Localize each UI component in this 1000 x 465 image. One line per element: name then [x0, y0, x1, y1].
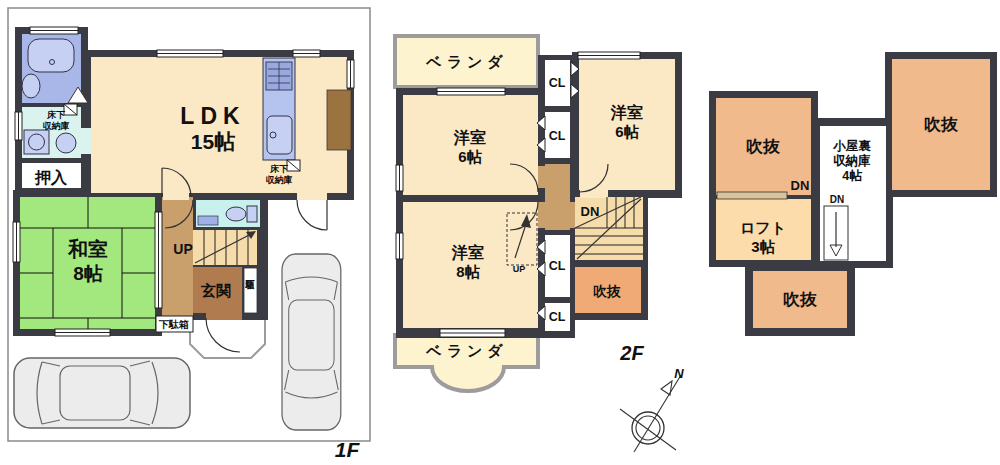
ldk-label-line2: 15帖 — [191, 130, 235, 153]
loft-label2: 3帖 — [751, 238, 775, 255]
hall-2f — [545, 164, 570, 230]
compass-north-label: N — [674, 366, 684, 381]
underfloor-label-b2: 収納庫 — [266, 174, 293, 185]
cabinet-counter — [327, 90, 351, 150]
attic-ladder-down — [824, 206, 848, 260]
bedroom6-left-label1: 洋室 — [453, 128, 486, 146]
car-icon-left — [14, 358, 190, 428]
veranda-top-label: ベランダ — [425, 53, 507, 70]
shoe-cabinet-right — [244, 268, 257, 313]
opening-stairs — [570, 202, 575, 228]
ldk-label-line1: LDK — [180, 103, 245, 129]
void-left-label: 吹抜 — [746, 137, 781, 156]
attic-label3: 4帖 — [842, 169, 862, 183]
underfloor-label-a2: 収納庫 — [43, 120, 70, 131]
underfloor-marker-a — [64, 104, 77, 115]
stairs-up-label-1f: UP — [173, 241, 192, 257]
underfloor-label-a1: 床下 — [46, 110, 66, 120]
compass-icon: N — [620, 366, 684, 452]
attic-label1: 小屋裏 — [832, 139, 871, 153]
attic-dn-label: DN — [830, 194, 844, 205]
opening-washroom — [81, 128, 91, 154]
opening-entrance — [206, 313, 242, 320]
opening-ldk-garden — [297, 193, 327, 200]
floor2-label: 2F — [619, 342, 644, 364]
veranda-bottom-label: ベランダ — [425, 342, 507, 359]
loft-ladder-bar — [717, 192, 787, 199]
void-2f-label: 吹抜 — [593, 283, 621, 299]
underfloor-label-b1: 床下 — [269, 164, 289, 174]
closet-2-label: CL — [549, 129, 566, 143]
genkan-label: 玄関 — [200, 282, 231, 299]
bedroom6-right-label1: 洋室 — [610, 103, 643, 121]
oshiire-label: 押入 — [34, 169, 68, 186]
washbasin-icon — [56, 133, 76, 153]
closet-3-label: CL — [549, 259, 566, 273]
void-bottom-label: 吹抜 — [783, 290, 818, 309]
washing-machine-icon — [24, 130, 49, 154]
loft-plan: 吹抜 吹抜 吹抜 ロフト 3帖 小屋裏 収納庫 4帖 DN DN — [709, 52, 997, 336]
bedroom8-label2: 8帖 — [456, 263, 480, 280]
floor1-label: 1F — [335, 438, 361, 461]
washitsu-label-line1: 和室 — [67, 238, 108, 260]
floor2-plan: ベランダ ベランダ 洋室 6帖 洋室 6帖 洋室 8帖 CL CL CL CL … — [395, 36, 684, 452]
car-icon-right — [282, 254, 341, 430]
entrance-porch — [190, 318, 265, 358]
void-right-label: 吹抜 — [924, 115, 959, 134]
floor-plan-page: LDK 15帖 和室 8帖 押入 玄関 床下 収納庫 床下 収納庫 下駄箱 下駄… — [0, 0, 1000, 465]
underfloor-marker-b — [287, 160, 300, 171]
shoe-cabinet-label-bottom: 下駄箱 — [158, 319, 189, 330]
opening-bedroom8 — [538, 202, 545, 228]
stairs-down-label: DN — [581, 204, 600, 219]
opening-bedroom6-left — [538, 166, 545, 188]
bedroom6-left-label2: 6帖 — [458, 148, 482, 165]
ladder-up-label: UP — [513, 264, 526, 274]
loft-dn-label: DN — [791, 178, 810, 193]
floor1-plan: LDK 15帖 和室 8帖 押入 玄関 床下 収納庫 床下 収納庫 下駄箱 下駄… — [8, 8, 370, 461]
kitchen-counter-icon — [263, 58, 295, 160]
closet-4-label: CL — [549, 310, 566, 324]
attic-label2: 収納庫 — [833, 153, 871, 168]
sliding-door — [155, 212, 162, 308]
closet-1-label: CL — [549, 76, 566, 90]
loft-label1: ロフト — [740, 219, 786, 236]
opening-ldk-hall — [163, 193, 189, 200]
bedroom6-right-label2: 6帖 — [615, 123, 639, 140]
washitsu-label-line2: 8帖 — [73, 263, 103, 284]
shoe-cabinet-bottom: 下駄箱 — [156, 316, 193, 332]
floor-plan-canvas: LDK 15帖 和室 8帖 押入 玄関 床下 収納庫 床下 収納庫 下駄箱 下駄… — [0, 0, 1000, 465]
bedroom8-label1: 洋室 — [451, 243, 484, 261]
